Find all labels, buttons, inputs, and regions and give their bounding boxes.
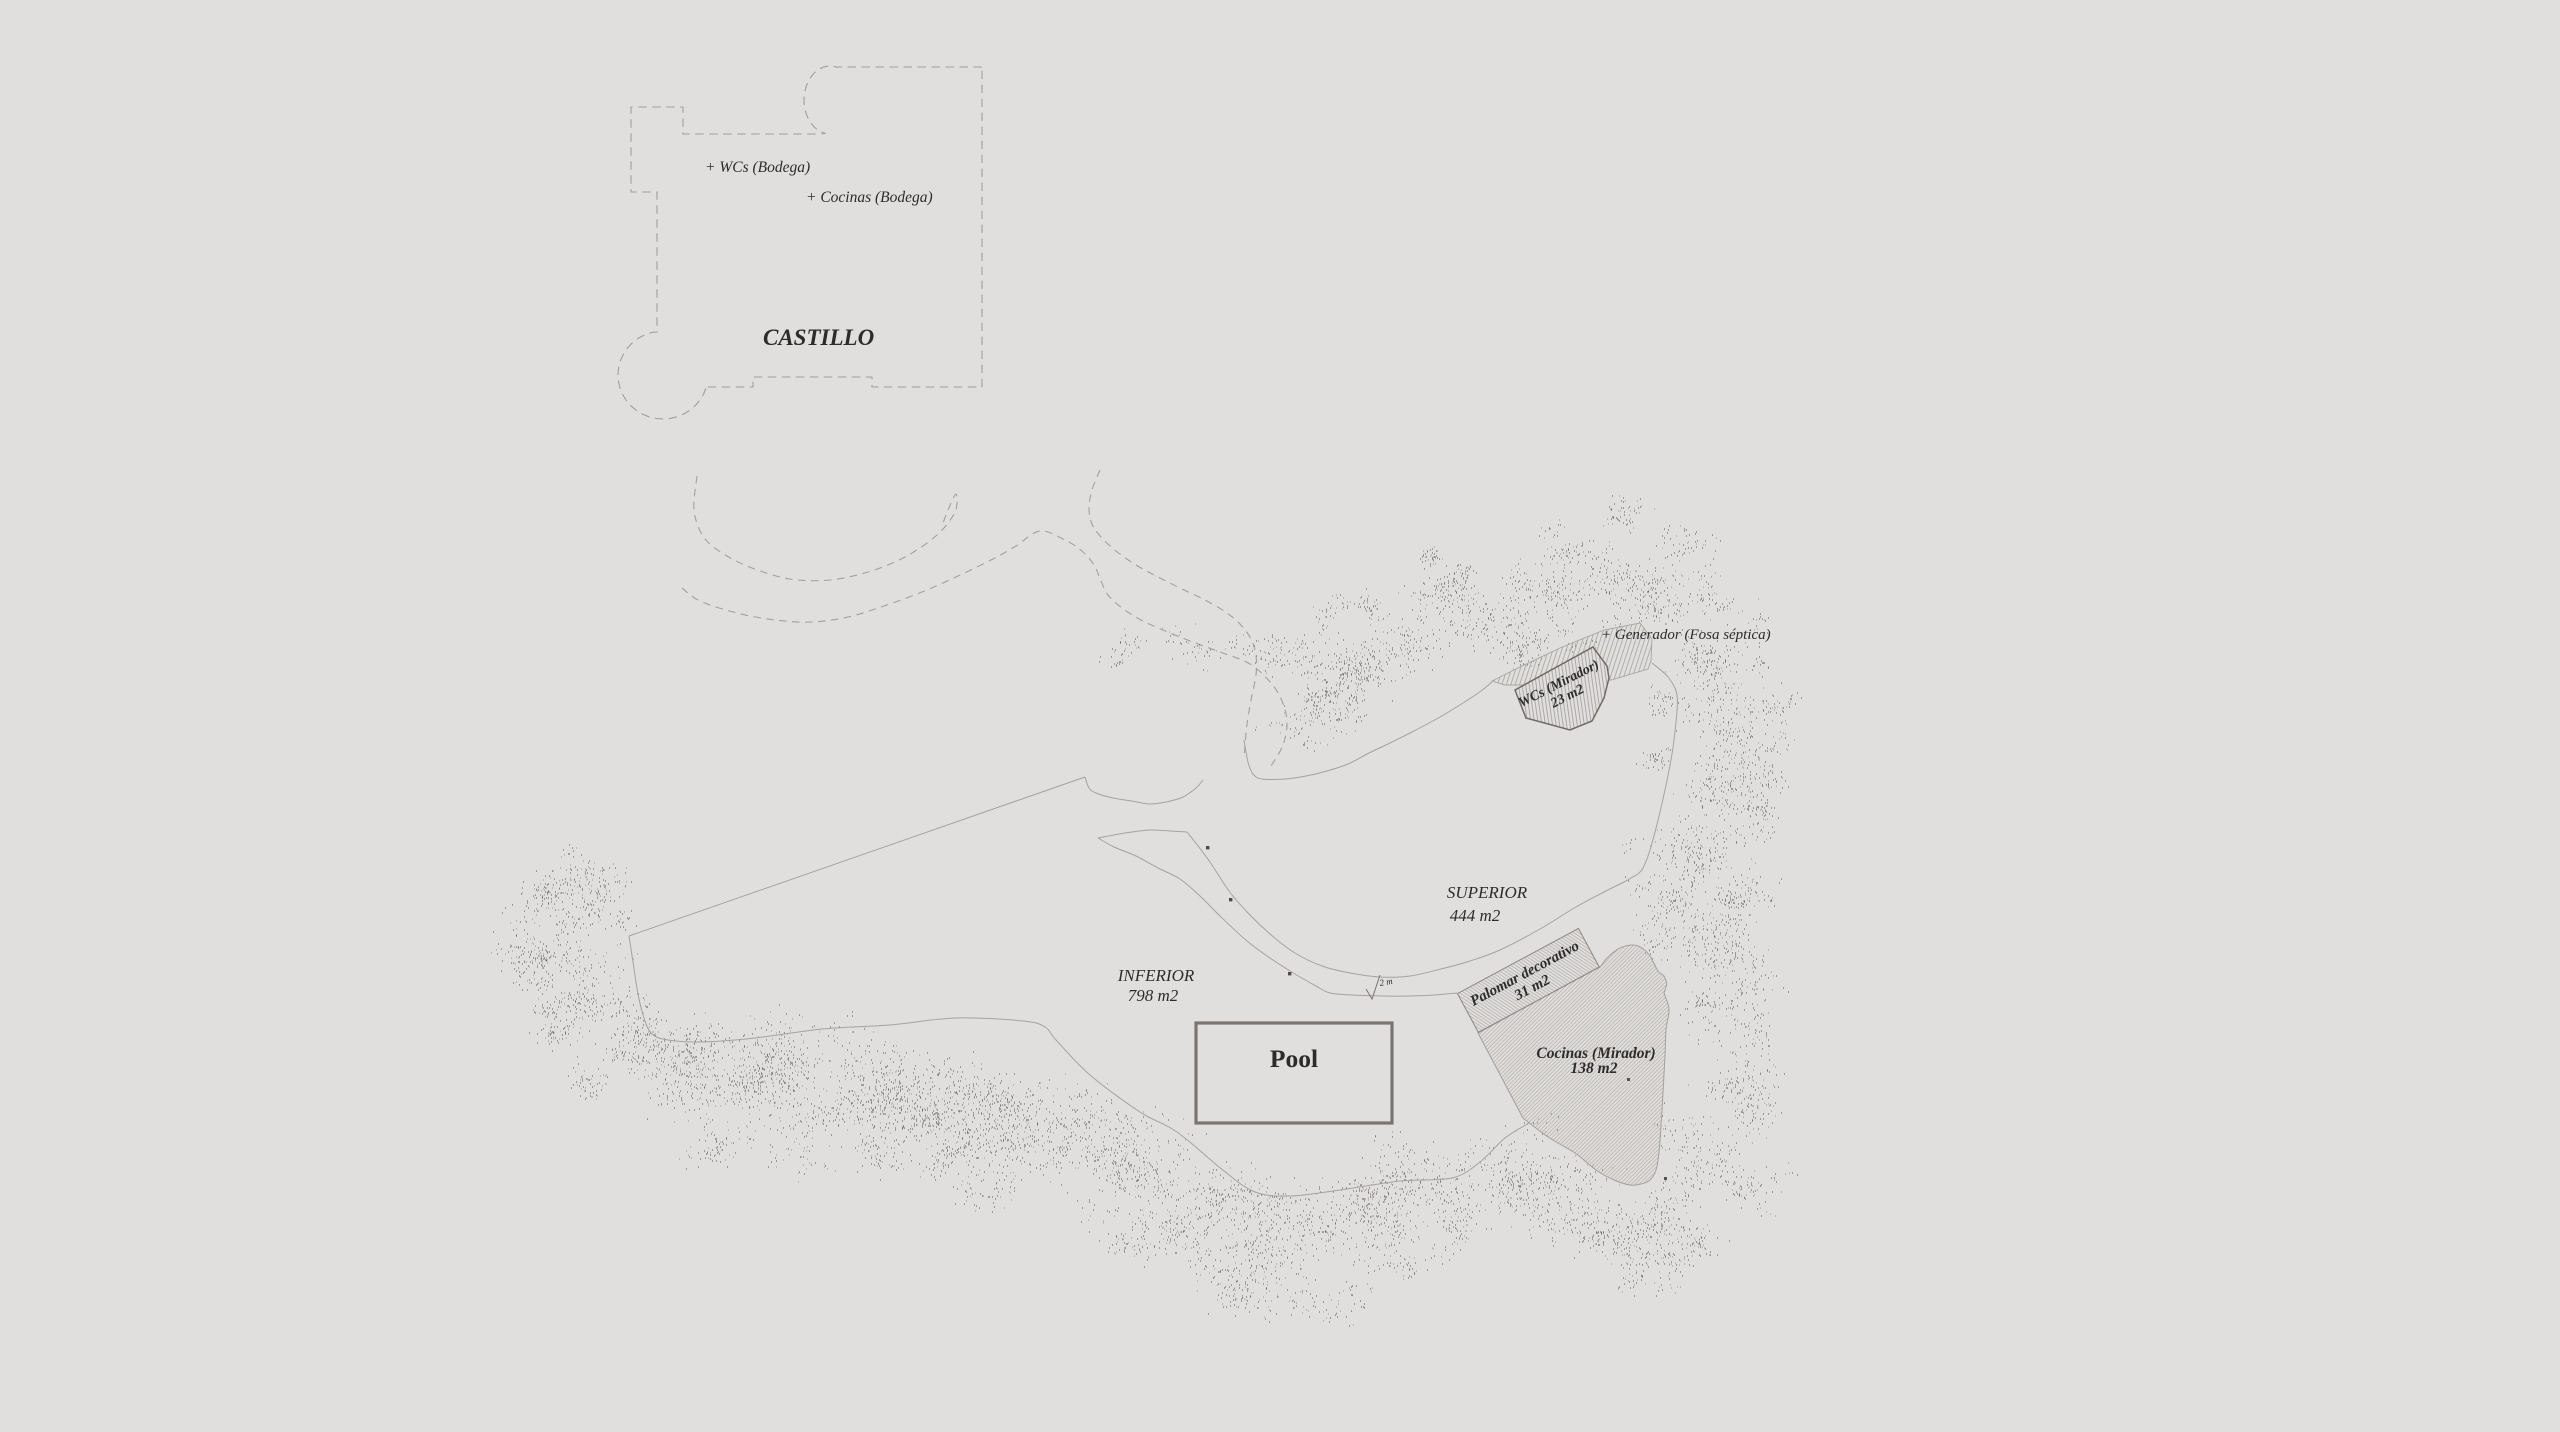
svg-text:+ WCs (Bodega): + WCs (Bodega) [705,159,810,176]
svg-text:138 m2: 138 m2 [1571,1060,1618,1077]
svg-text:444 m2: 444 m2 [1450,906,1501,925]
svg-text:+ Cocinas (Bodega): + Cocinas (Bodega) [806,189,933,206]
svg-text:SUPERIOR: SUPERIOR [1447,883,1528,902]
svg-text:CASTILLO: CASTILLO [763,325,874,350]
svg-text:+ Generador (Fosa séptica): + Generador (Fosa séptica) [1601,627,1771,643]
svg-text:798 m2: 798 m2 [1128,986,1179,1005]
svg-text:Pool: Pool [1270,1044,1318,1073]
svg-text:INFERIOR: INFERIOR [1117,966,1195,985]
